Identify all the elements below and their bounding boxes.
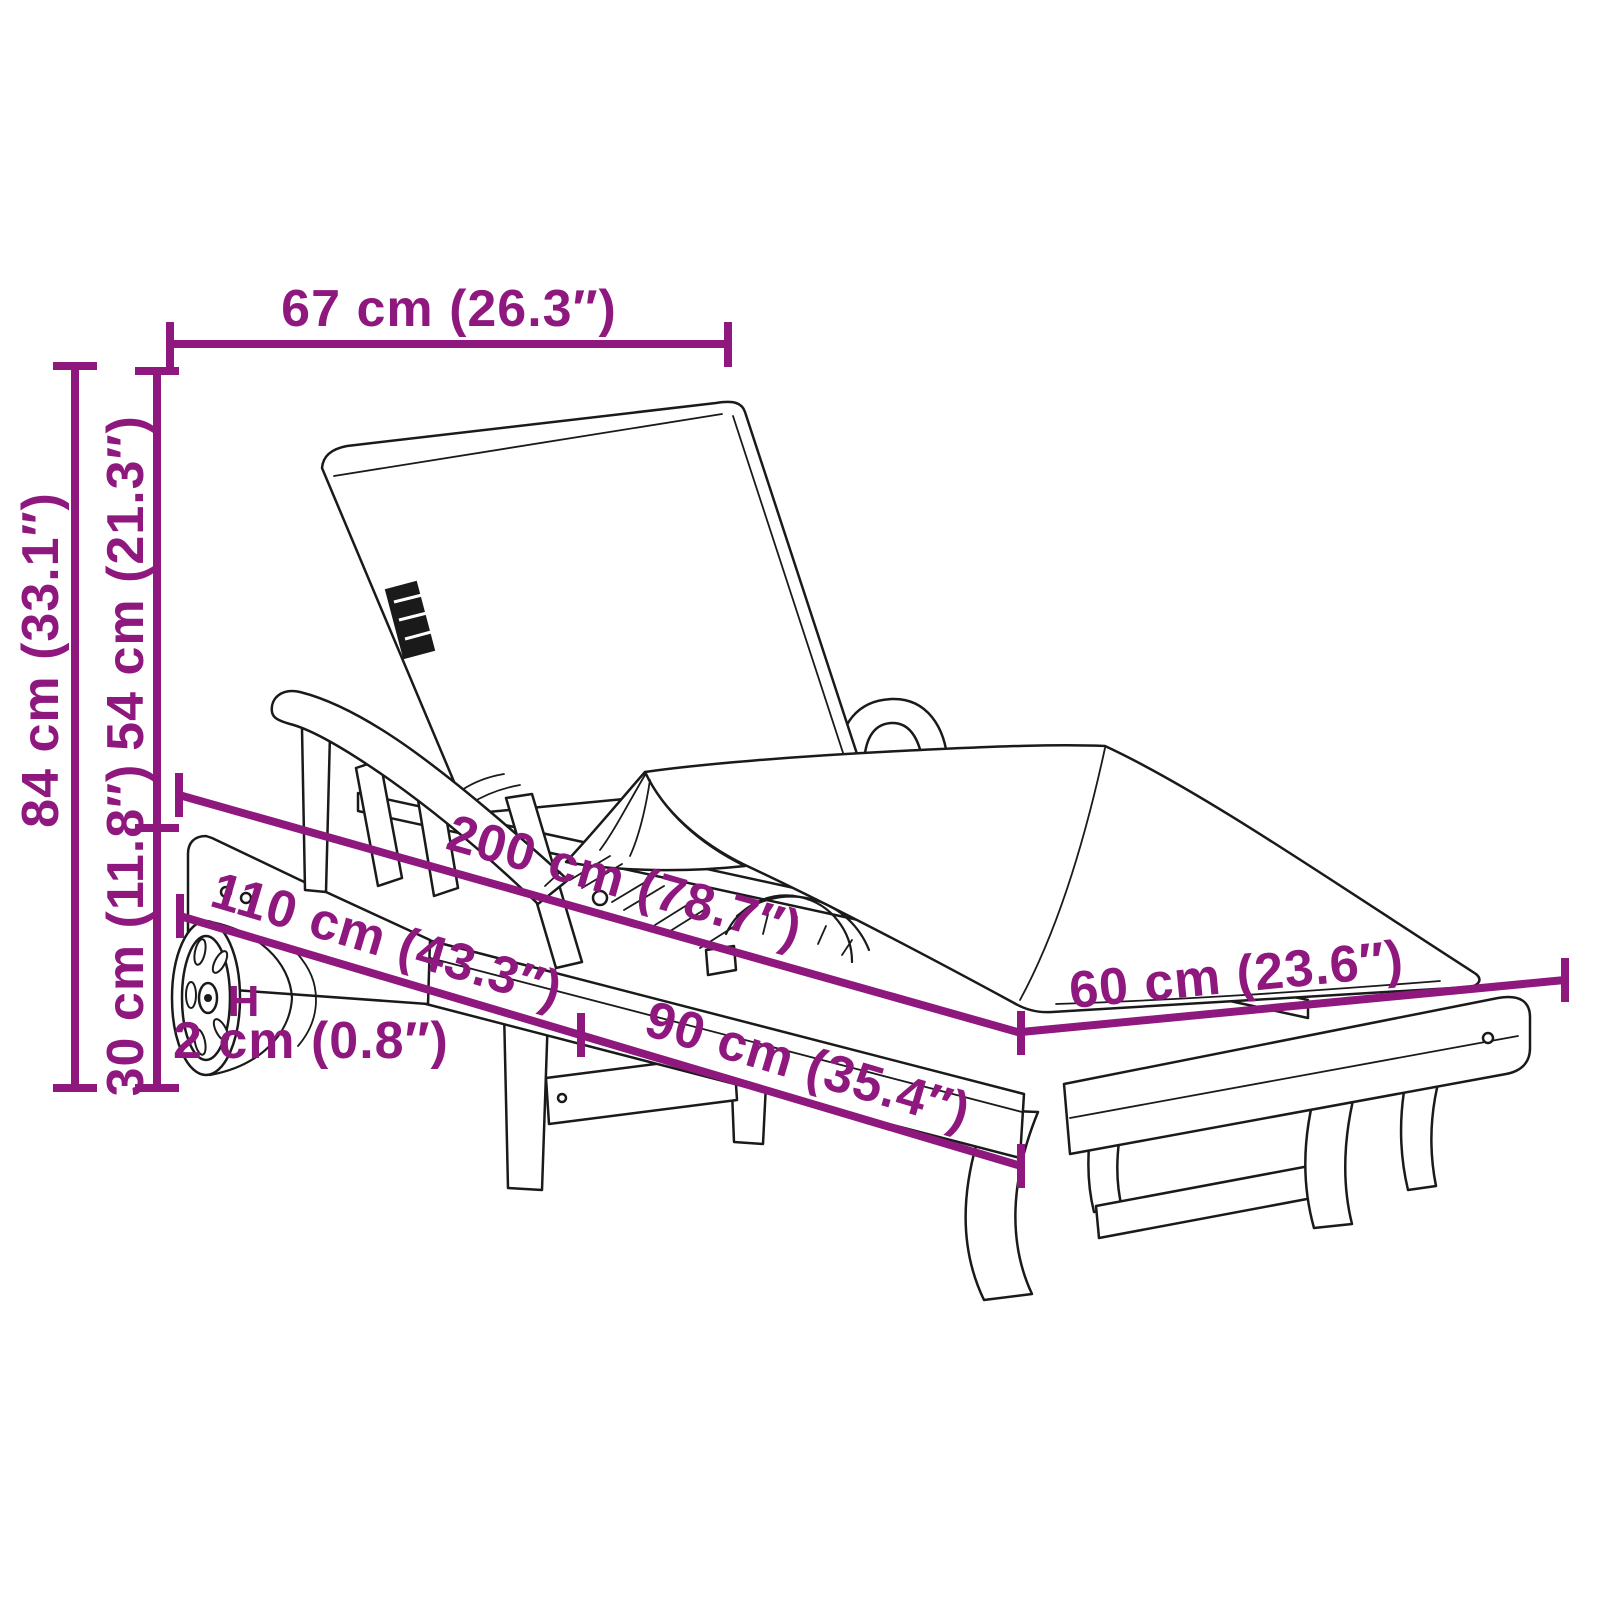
dimension-top-width: 67 cm (26.3″) [170, 280, 728, 367]
dimension-diagram-svg: 67 cm (26.3″) 84 cm (33.1″) 54 cm (21.3″… [0, 0, 1600, 1600]
dim-label-84: 84 cm (33.1″) [12, 492, 70, 828]
stretcher-screw [558, 1094, 566, 1102]
dim-label-54: 54 cm (21.3″) [97, 415, 155, 751]
dimension-backrest-and-seat-height: 54 cm (21.3″) 30 cm (11.8″) [97, 371, 179, 1096]
wheel-hub-dot [204, 994, 212, 1002]
diagram-canvas: 67 cm (26.3″) 84 cm (33.1″) 54 cm (21.3″… [0, 0, 1600, 1600]
armrest-front-post [302, 728, 330, 892]
middle-near-leg [504, 1010, 548, 1190]
foot-board-screw [1483, 1033, 1493, 1043]
dimension-overall-height: 84 cm (33.1″) [12, 366, 97, 1088]
dim-label-67: 67 cm (26.3″) [281, 280, 617, 338]
dim-label-2cm: 2 cm (0.8″) [173, 1012, 449, 1070]
long-stretcher [1096, 1164, 1323, 1238]
dim-label-30: 30 cm (11.8″) [97, 764, 155, 1097]
